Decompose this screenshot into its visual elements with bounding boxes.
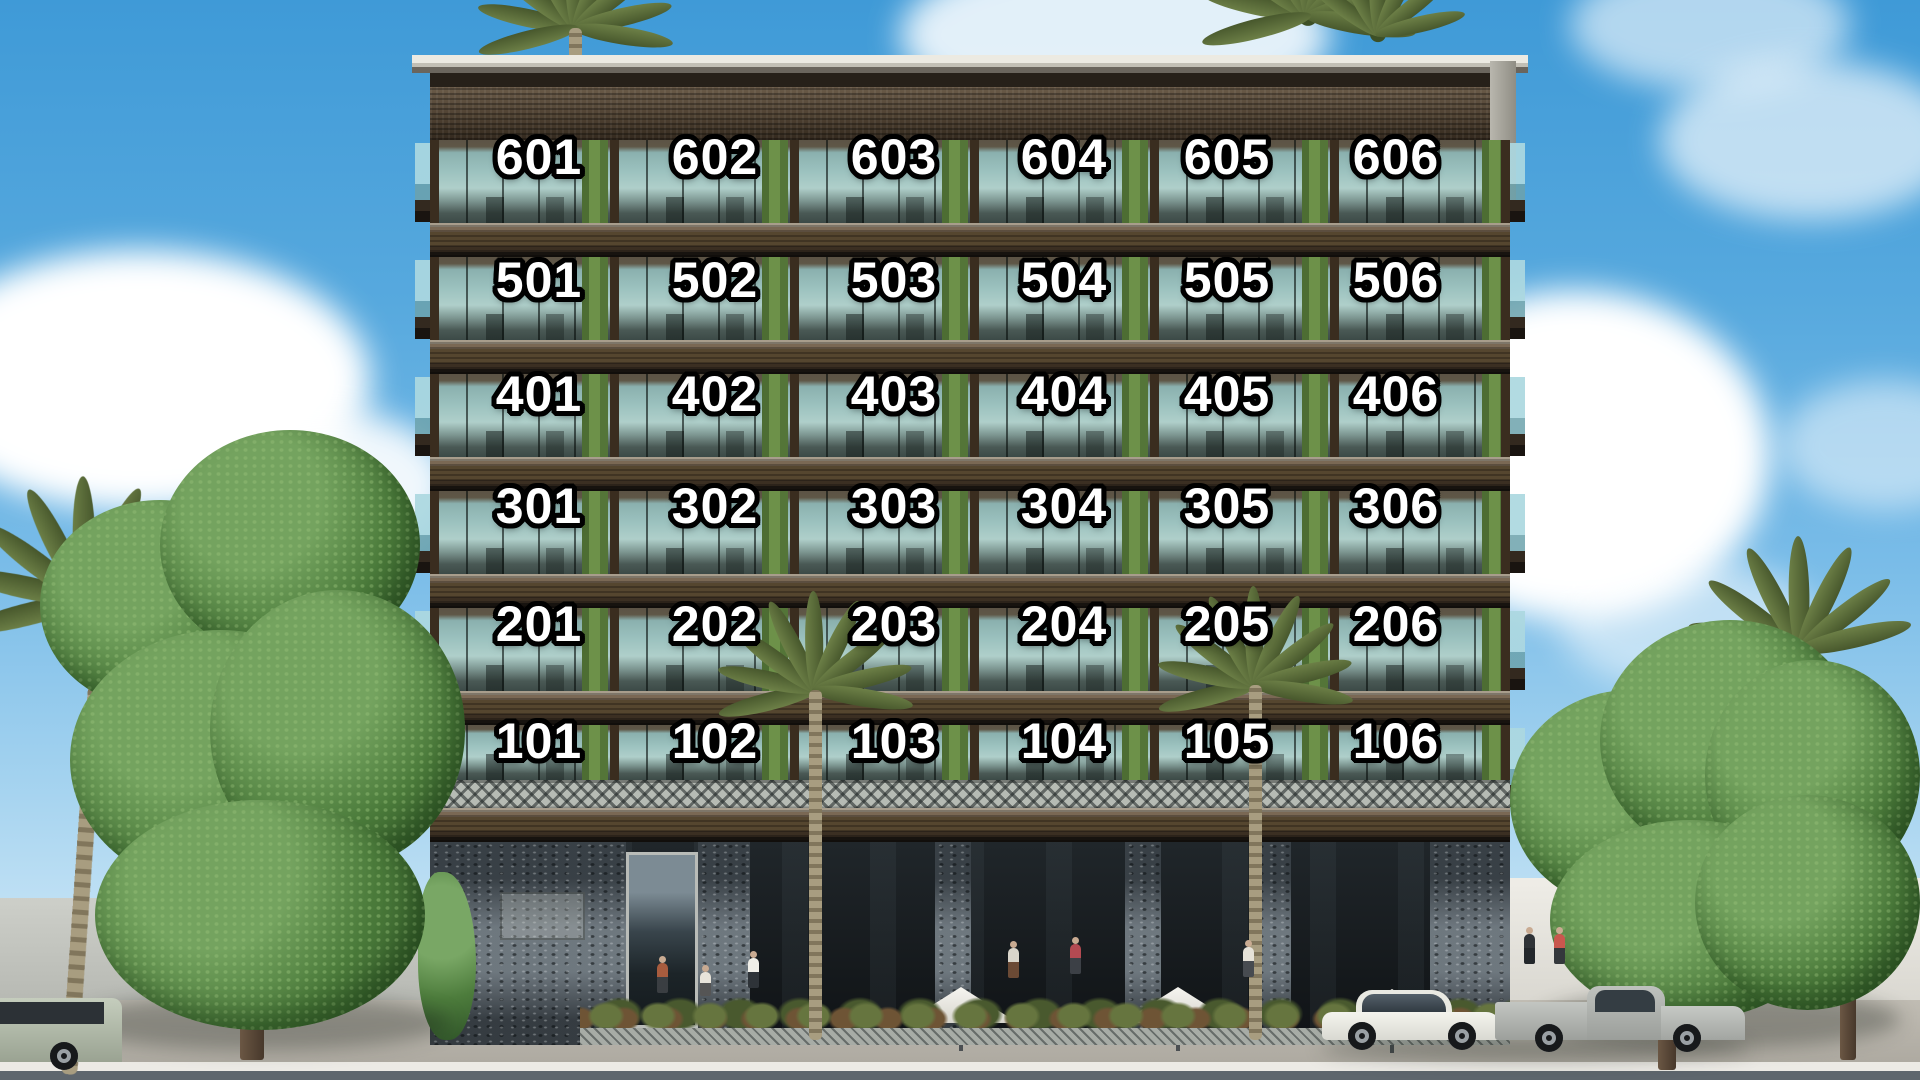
wheel [50,1042,78,1070]
building-facade [430,55,1510,1045]
tree-canopy [95,800,425,1030]
unit-label-101[interactable]: 101 [496,716,582,766]
floor-6 [430,140,1510,257]
floor-1-lattice-balustrade [430,780,1510,808]
entrance-plaque [500,892,585,940]
wheel [1348,1022,1376,1050]
unit-label-402[interactable]: 402 [672,369,758,419]
unit-label-403[interactable]: 403 [851,369,937,419]
unit-label-303[interactable]: 303 [851,481,937,531]
unit-label-605[interactable]: 605 [1184,132,1270,182]
unit-label-305[interactable]: 305 [1184,481,1270,531]
unit-label-204[interactable]: 204 [1021,599,1107,649]
unit-label-405[interactable]: 405 [1184,369,1270,419]
floor-1-windows [430,725,1510,780]
floor-slab [430,457,1510,491]
white-sedan [1322,988,1502,1050]
unit-label-406[interactable]: 406 [1353,369,1439,419]
unit-label-606[interactable]: 606 [1353,132,1439,182]
floor-slab [430,223,1510,257]
person [700,972,711,996]
unit-label-104[interactable]: 104 [1021,716,1107,766]
person [748,958,759,988]
jeep-window [0,1002,104,1024]
floor-6-windows [430,140,1510,223]
sedan-window [1362,994,1446,1014]
roof-fascia [430,73,1510,87]
floor-slab [430,808,1510,842]
floor-3-windows [430,491,1510,574]
unit-label-603[interactable]: 603 [851,132,937,182]
floor-slab [430,574,1510,608]
wheel [1535,1024,1563,1052]
palm-trunk [809,690,822,1040]
floor-4-windows [430,374,1510,457]
unit-label-102[interactable]: 102 [672,716,758,766]
unit-label-601[interactable]: 601 [496,132,582,182]
unit-label-103[interactable]: 103 [851,716,937,766]
roof-parapet [430,87,1510,140]
unit-label-602[interactable]: 602 [672,132,758,182]
unit-label-206[interactable]: 206 [1353,599,1439,649]
truck-window [1595,990,1655,1012]
pickup-truck [1495,972,1745,1052]
unit-label-105[interactable]: 105 [1184,716,1270,766]
floor-slab [430,340,1510,374]
person [1554,934,1565,964]
unit-label-205[interactable]: 205 [1184,599,1270,649]
wheel [1448,1022,1476,1050]
building-unit-selector-scene: 601 602 603 604 605 606 501 502 503 504 … [0,0,1920,1080]
person [1070,944,1081,974]
floor-3 [430,491,1510,608]
floor-2-windows [430,608,1510,691]
unit-label-106[interactable]: 106 [1353,716,1439,766]
person [1243,947,1254,977]
jeep-vehicle [0,950,127,1070]
unit-label-404[interactable]: 404 [1021,369,1107,419]
floor-4 [430,374,1510,491]
roof-slab [412,55,1528,73]
unit-label-203[interactable]: 203 [851,599,937,649]
person [657,963,668,993]
floor-5 [430,257,1510,374]
person [1008,948,1019,978]
unit-label-506[interactable]: 506 [1353,255,1439,305]
unit-label-302[interactable]: 302 [672,481,758,531]
person [1524,934,1535,964]
unit-label-503[interactable]: 503 [851,255,937,305]
unit-label-604[interactable]: 604 [1021,132,1107,182]
unit-label-304[interactable]: 304 [1021,481,1107,531]
unit-label-202[interactable]: 202 [672,599,758,649]
floor-5-windows [430,257,1510,340]
unit-label-401[interactable]: 401 [496,369,582,419]
unit-label-505[interactable]: 505 [1184,255,1270,305]
unit-label-201[interactable]: 201 [496,599,582,649]
unit-label-502[interactable]: 502 [672,255,758,305]
unit-label-504[interactable]: 504 [1021,255,1107,305]
unit-label-306[interactable]: 306 [1353,481,1439,531]
unit-label-301[interactable]: 301 [496,481,582,531]
floor-1 [430,725,1510,842]
wheel [1673,1024,1701,1052]
unit-label-501[interactable]: 501 [496,255,582,305]
